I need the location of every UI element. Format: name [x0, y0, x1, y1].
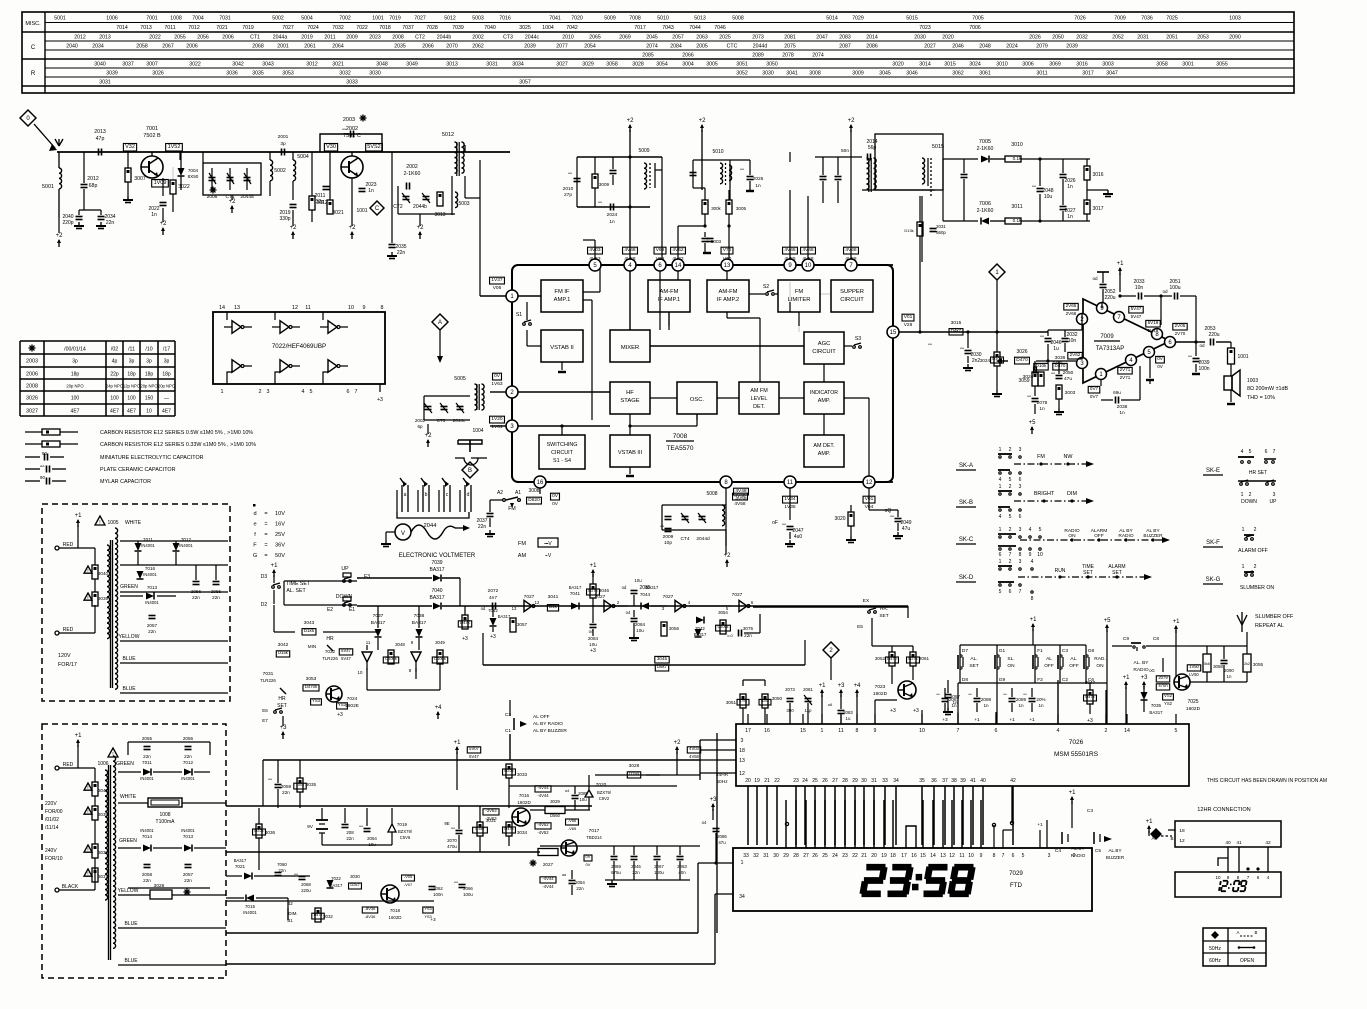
svg-text:68p: 68p — [89, 183, 98, 189]
svg-text:2V62: 2V62 — [1070, 352, 1081, 357]
svg-text:2073: 2073 — [752, 35, 764, 41]
svg-text:3043: 3043 — [262, 62, 274, 68]
svg-text:5: 5 — [1039, 527, 1042, 533]
svg-text:D22k: D22k — [254, 828, 263, 833]
svg-text:1: 1 — [1242, 564, 1245, 570]
svg-text:2V65: 2V65 — [1066, 303, 1077, 308]
svg-text:5015: 5015 — [906, 16, 918, 22]
svg-text:SWITCHING: SWITCHING — [547, 442, 578, 448]
svg-text:27: 27 — [832, 778, 838, 784]
svg-text:o4: o4 — [702, 820, 707, 825]
svg-text:2002: 2002 — [406, 164, 418, 170]
svg-text:SET: SET — [1112, 570, 1122, 576]
svg-text:BA317: BA317 — [646, 585, 659, 590]
svg-text:CT2: CT2 — [415, 35, 425, 41]
svg-text:3014: 3014 — [919, 62, 931, 68]
svg-text:3036: 3036 — [265, 830, 276, 835]
svg-text:6: 6 — [1265, 449, 1268, 455]
svg-text:7022/HEF4069UBP: 7022/HEF4069UBP — [272, 343, 326, 350]
svg-text:7042: 7042 — [566, 25, 578, 31]
svg-text:2086: 2086 — [866, 44, 878, 50]
svg-text:3041: 3041 — [548, 594, 559, 600]
svg-text:120V: 120V — [58, 653, 71, 659]
svg-text:7017: 7017 — [634, 25, 646, 31]
svg-text:SET: SET — [879, 613, 888, 619]
svg-text:BA317: BA317 — [569, 585, 582, 590]
svg-text:3021: 3021 — [332, 62, 344, 68]
svg-text:▵▵: ▵▵ — [936, 692, 940, 696]
svg-text:100u: 100u — [1169, 285, 1180, 291]
svg-text:16: 16 — [537, 480, 544, 486]
svg-text:LEVEL: LEVEL — [751, 396, 768, 402]
svg-text:30: 30 — [861, 778, 867, 784]
svg-text:▵▵: ▵▵ — [1040, 333, 1044, 338]
svg-text:TLR226: TLR226 — [322, 656, 338, 661]
svg-text:1n: 1n — [1018, 703, 1024, 708]
svg-text:YS2: YS2 — [1164, 701, 1173, 706]
svg-text:4V58: 4V58 — [689, 754, 699, 759]
svg-text:2052: 2052 — [1112, 35, 1124, 41]
svg-text:34: 34 — [739, 894, 745, 900]
svg-text:+3: +3 — [1141, 675, 1149, 681]
svg-text:3031: 3031 — [486, 818, 497, 823]
svg-text:BZX79/: BZX79/ — [398, 829, 413, 834]
svg-text:AL.: AL. — [970, 656, 977, 662]
svg-text:▵▵: ▵▵ — [960, 345, 964, 350]
svg-text:BA317: BA317 — [429, 595, 444, 601]
svg-text:D150: D150 — [629, 771, 640, 776]
svg-text:V01: V01 — [904, 314, 913, 320]
svg-text:22n: 22n — [192, 595, 200, 600]
svg-text:4E7: 4E7 — [110, 409, 119, 415]
svg-text:2055: 2055 — [174, 35, 186, 41]
svg-text:YS3: YS3 — [424, 906, 432, 911]
svg-text:NW: NW — [1064, 454, 1074, 460]
svg-text:208: 208 — [346, 830, 354, 835]
svg-text:PLATE CERAMIC CAPACITOR: PLATE CERAMIC CAPACITOR — [100, 467, 176, 473]
svg-text:2: 2 — [1254, 564, 1257, 570]
svg-text:7029: 7029 — [1009, 870, 1023, 877]
svg-text:BA317: BA317 — [429, 567, 444, 573]
svg-text:D10k: D10k — [992, 356, 1001, 361]
svg-text:=: = — [264, 532, 267, 538]
svg-text:4: 4 — [1241, 449, 1244, 455]
svg-text:D15k: D15k — [278, 650, 289, 655]
svg-text:1n: 1n — [1039, 406, 1045, 412]
svg-text:CT4: CT4 — [680, 536, 689, 542]
svg-text:2062: 2062 — [433, 886, 443, 891]
svg-text:2009: 2009 — [346, 35, 358, 41]
svg-text:2002: 2002 — [472, 35, 484, 41]
svg-text:8X50: 8X50 — [188, 174, 199, 179]
svg-text:2046: 2046 — [952, 44, 964, 50]
svg-text:1: 1 — [999, 527, 1002, 533]
svg-text:1u: 1u — [846, 716, 851, 721]
svg-text:/11: /11 — [128, 347, 135, 353]
svg-text:7011: 7011 — [142, 760, 152, 765]
svg-text:MIN: MIN — [308, 644, 316, 649]
svg-text:2083: 2083 — [839, 35, 851, 41]
svg-text:1: 1 — [999, 559, 1002, 565]
svg-text:SUPPER: SUPPER — [840, 289, 864, 295]
svg-text:2026: 2026 — [1029, 35, 1041, 41]
svg-text:10u: 10u — [589, 642, 597, 647]
svg-text:2011: 2011 — [324, 35, 335, 41]
svg-text:0V: 0V — [552, 501, 559, 507]
svg-text:5005: 5005 — [454, 376, 466, 382]
svg-text:+1: +1 — [1030, 617, 1038, 623]
svg-text:2031: 2031 — [1137, 35, 1149, 41]
svg-text:2023: 2023 — [369, 35, 381, 41]
svg-text:8: 8 — [1237, 875, 1240, 880]
svg-text:3036: 3036 — [1055, 355, 1066, 361]
svg-text:5VS2: 5VS2 — [367, 144, 380, 150]
svg-text:e: e — [253, 522, 256, 528]
svg-text:2013: 2013 — [94, 129, 106, 135]
svg-text:7024: 7024 — [347, 696, 358, 702]
svg-text:3017: 3017 — [1082, 71, 1094, 77]
svg-text:2056: 2056 — [197, 35, 209, 41]
svg-text:2072: 2072 — [488, 588, 499, 594]
svg-text:47p: 47p — [96, 136, 105, 142]
svg-text:o.0: o.0 — [727, 633, 733, 638]
svg-text:D100k: D100k — [434, 656, 446, 661]
svg-text:3007: 3007 — [146, 62, 158, 68]
svg-text:2053: 2053 — [1197, 35, 1209, 41]
svg-text:S1 - S4: S1 - S4 — [553, 458, 571, 464]
svg-text:7044: 7044 — [689, 25, 701, 31]
svg-text:oG: oG — [1149, 668, 1155, 673]
svg-text:1V20: 1V20 — [491, 416, 503, 422]
svg-text:CIRCUIT: CIRCUIT — [812, 349, 836, 355]
svg-text:3046: 3046 — [599, 588, 610, 593]
svg-text:2044a: 2044a — [273, 35, 288, 41]
svg-text:C9: C9 — [1123, 636, 1129, 642]
svg-text:330p: 330p — [279, 216, 290, 222]
svg-text:1: 1 — [221, 389, 224, 395]
svg-text:YS3: YS3 — [312, 698, 321, 703]
svg-text:7019: 7019 — [389, 16, 401, 22]
svg-text:A: A — [438, 320, 442, 326]
svg-text:UP: UP — [1270, 499, 1278, 505]
svg-text:7013: 7013 — [140, 25, 152, 31]
svg-text:24: 24 — [832, 853, 838, 859]
svg-text:3010: 3010 — [996, 62, 1008, 68]
svg-text:7040: 7040 — [431, 588, 442, 594]
svg-text:2073: 2073 — [785, 687, 795, 692]
svg-text:3035: 3035 — [252, 71, 264, 77]
svg-text:2069: 2069 — [611, 864, 621, 869]
svg-text:G1: G1 — [999, 648, 1006, 654]
svg-text:V70: V70 — [723, 256, 732, 262]
svg-text:2047: 2047 — [816, 35, 828, 41]
svg-text:19: 19 — [881, 853, 887, 859]
svg-text:+3: +3 — [490, 634, 496, 640]
svg-text:IF AMP.2: IF AMP.2 — [717, 297, 739, 303]
svg-text:E2: E2 — [327, 607, 333, 613]
svg-text:3032: 3032 — [339, 71, 351, 77]
svg-text:2044b: 2044b — [437, 35, 452, 41]
svg-text:1005: 1005 — [107, 520, 118, 526]
svg-text:10u: 10u — [1044, 194, 1053, 200]
svg-text:YELLOW: YELLOW — [119, 634, 140, 640]
svg-text:100k: 100k — [296, 783, 304, 787]
svg-text:3: 3 — [1048, 853, 1051, 859]
svg-text:3055: 3055 — [1216, 62, 1228, 68]
svg-text:7031: 7031 — [263, 671, 274, 677]
svg-text:15: 15 — [920, 853, 926, 859]
svg-text:7015: 7015 — [245, 904, 256, 909]
svg-text:2006: 2006 — [222, 35, 234, 41]
svg-text:3058: 3058 — [1156, 62, 1168, 68]
svg-text:8: 8 — [993, 853, 996, 859]
svg-text:2044b: 2044b — [413, 204, 427, 210]
svg-text:3051: 3051 — [736, 62, 748, 68]
svg-text:2055: 2055 — [142, 736, 153, 741]
svg-text:2077: 2077 — [556, 44, 568, 50]
svg-text:2050: 2050 — [1052, 35, 1064, 41]
svg-text:4: 4 — [1031, 559, 1034, 565]
svg-text:0V: 0V — [494, 373, 501, 379]
svg-text:+3: +3 — [377, 397, 383, 403]
svg-text:5012: 5012 — [442, 132, 454, 138]
svg-text:3003: 3003 — [1102, 62, 1114, 68]
svg-text:▵▵: ▵▵ — [782, 521, 786, 526]
svg-text:2039: 2039 — [1066, 44, 1078, 50]
svg-text:2070: 2070 — [447, 838, 457, 843]
svg-text:18: 18 — [1179, 828, 1185, 834]
svg-text:22n: 22n — [397, 250, 406, 256]
svg-text:E7: E7 — [262, 718, 268, 723]
svg-text:RED: RED — [63, 627, 74, 633]
svg-text:LV50: LV50 — [1189, 672, 1199, 677]
svg-text:▵▵: ▵▵ — [451, 825, 455, 830]
svg-text:YELLOW: YELLOW — [118, 888, 139, 894]
svg-text:7: 7 — [1019, 589, 1022, 595]
svg-text:TLR226: TLR226 — [260, 678, 276, 683]
svg-text:/01/02: /01/02 — [45, 817, 59, 823]
svg-text:3045: 3045 — [657, 656, 668, 661]
svg-text:DOWN: DOWN — [1241, 499, 1257, 505]
svg-text:2069: 2069 — [619, 35, 631, 41]
svg-text:7004: 7004 — [192, 16, 204, 22]
svg-text:3p: 3p — [146, 359, 152, 365]
svg-text:8: 8 — [856, 728, 859, 734]
svg-text:!: ! — [87, 569, 88, 575]
svg-text:7043: 7043 — [662, 25, 674, 31]
svg-text:3009: 3009 — [599, 182, 610, 187]
svg-text:E3: E3 — [364, 574, 370, 580]
svg-text:FTD: FTD — [1010, 882, 1023, 889]
svg-text:MYLAR CAPACITOR: MYLAR CAPACITOR — [100, 479, 151, 485]
svg-text:2010: 2010 — [563, 186, 574, 192]
svg-text:3020: 3020 — [834, 516, 845, 522]
svg-text:C2: C2 — [1062, 677, 1068, 683]
svg-text:7005: 7005 — [979, 139, 991, 145]
svg-text:7: 7 — [1009, 552, 1012, 558]
svg-text:3013: 3013 — [446, 62, 458, 68]
svg-text:42: 42 — [1265, 840, 1271, 846]
svg-text:33p: 33p — [316, 199, 325, 205]
svg-text:D10k: D10k — [1036, 363, 1047, 368]
svg-text:3040: 3040 — [98, 788, 108, 793]
svg-text:+3: +3 — [710, 797, 718, 803]
svg-text:AM: AM — [518, 553, 527, 559]
svg-text:12: 12 — [535, 600, 540, 605]
svg-text:D4k7: D4k7 — [951, 328, 962, 333]
svg-text:10: 10 — [1215, 875, 1221, 880]
svg-text:2079: 2079 — [1158, 675, 1168, 680]
svg-text:3049: 3049 — [435, 640, 445, 645]
svg-text:5V47: 5V47 — [341, 656, 351, 661]
svg-text:22n: 22n — [282, 790, 290, 795]
svg-text:8Ω 200mW ±1dB: 8Ω 200mW ±1dB — [1247, 386, 1289, 392]
svg-text:2075: 2075 — [784, 44, 796, 50]
svg-text:GREEN: GREEN — [116, 761, 134, 767]
svg-text:2078: 2078 — [1037, 400, 1048, 406]
svg-text:4: 4 — [999, 514, 1002, 520]
svg-text:-8V36: -8V36 — [365, 914, 376, 919]
svg-text:35: 35 — [919, 778, 925, 784]
svg-text:5010: 5010 — [657, 16, 669, 22]
svg-text:2: 2 — [259, 389, 262, 395]
svg-text:S3: S3 — [855, 336, 861, 342]
svg-text:2003: 2003 — [26, 359, 38, 365]
svg-text:7009: 7009 — [1100, 334, 1114, 340]
svg-text:22n: 22n — [143, 878, 151, 883]
svg-text:2006: 2006 — [186, 44, 198, 50]
svg-text:1n: 1n — [151, 212, 157, 218]
svg-text:AL. BY: AL. BY — [1134, 660, 1150, 666]
svg-text:7029: 7029 — [852, 16, 864, 22]
svg-text:5003: 5003 — [458, 201, 469, 207]
svg-text:V32: V32 — [125, 144, 135, 150]
svg-text:15: 15 — [800, 728, 806, 734]
svg-text:2087: 2087 — [949, 697, 960, 702]
svg-text:0V7: 0V7 — [1090, 394, 1099, 399]
svg-text:5V19: 5V19 — [1148, 320, 1159, 325]
svg-text:AL: AL — [1046, 656, 1052, 662]
svg-text:5V07: 5V07 — [469, 746, 479, 751]
svg-text:1n: 1n — [609, 219, 615, 225]
svg-text:2088: 2088 — [981, 697, 992, 702]
svg-text:22n: 22n — [278, 868, 286, 873]
svg-text:5009: 5009 — [604, 16, 616, 22]
svg-text:CT3: CT3 — [503, 35, 513, 41]
svg-text:3055: 3055 — [1253, 662, 1264, 667]
svg-text:7006: 7006 — [979, 201, 991, 207]
svg-text:3031: 3031 — [486, 62, 498, 68]
svg-text:S2: S2 — [763, 284, 769, 290]
svg-text:100u: 100u — [463, 892, 473, 897]
svg-text:10u: 10u — [636, 628, 644, 633]
svg-text:10V: 10V — [275, 511, 285, 517]
svg-text:15: 15 — [890, 330, 897, 336]
svg-text:od: od — [481, 606, 486, 611]
svg-text:G9: G9 — [999, 677, 1006, 683]
svg-text:50Hz: 50Hz — [1209, 946, 1221, 952]
svg-text:VSTAB II: VSTAB II — [550, 345, 574, 351]
svg-text:220V: 220V — [45, 801, 57, 807]
svg-text:IF AMP.1: IF AMP.1 — [658, 297, 680, 303]
svg-text:HR SET: HR SET — [1249, 470, 1267, 476]
svg-text:2065: 2065 — [589, 35, 601, 41]
svg-text:1003: 1003 — [1229, 16, 1241, 22]
svg-text:50n: 50n — [841, 148, 849, 154]
svg-text:2V71: 2V71 — [1120, 367, 1131, 372]
svg-text:3050: 3050 — [772, 696, 783, 701]
svg-text:13: 13 — [724, 263, 731, 269]
svg-text:4V58: 4V58 — [735, 496, 747, 502]
svg-text:3036: 3036 — [226, 71, 238, 77]
svg-text:7014: 7014 — [142, 834, 153, 839]
svg-text:▵▵: ▵▵ — [40, 463, 44, 468]
svg-text:2005: 2005 — [696, 44, 708, 50]
svg-text:C3: C3 — [1087, 808, 1093, 814]
svg-text:R: R — [31, 71, 36, 77]
svg-text:7041: 7041 — [570, 591, 581, 596]
svg-text:100: 100 — [127, 396, 136, 402]
svg-text:B1: B1 — [287, 918, 293, 923]
svg-text:F1: F1 — [1037, 648, 1043, 654]
svg-text:12p NPO: 12p NPO — [123, 384, 141, 389]
svg-text:WHITE: WHITE — [120, 794, 137, 800]
svg-text:7502 B: 7502 B — [143, 133, 161, 139]
svg-text:2014: 2014 — [866, 35, 878, 41]
svg-text:OFF: OFF — [1044, 663, 1054, 669]
svg-text:C3: C3 — [1062, 648, 1068, 654]
svg-text:11: 11 — [305, 305, 311, 311]
svg-text:7001: 7001 — [146, 16, 158, 22]
svg-text:3057: 3057 — [519, 80, 531, 86]
svg-text:3008: 3008 — [809, 71, 821, 77]
svg-text:11: 11 — [959, 853, 964, 859]
svg-text:3030: 3030 — [350, 874, 360, 879]
svg-text:2025: 2025 — [753, 176, 764, 182]
svg-text:AMP.: AMP. — [818, 398, 830, 404]
svg-text:4n7: 4n7 — [489, 595, 497, 601]
svg-text:STAGE: STAGE — [620, 398, 639, 404]
svg-text:7023: 7023 — [919, 25, 931, 31]
svg-text:D7: D7 — [962, 648, 968, 654]
svg-text:3039: 3039 — [106, 71, 118, 77]
svg-text:MINIATURE ELECTROLYTIC CAPACIT: MINIATURE ELECTROLYTIC CAPACITOR — [100, 455, 204, 461]
svg-text:7: 7 — [1247, 875, 1250, 880]
svg-text:AL.BY: AL.BY — [1108, 848, 1121, 853]
svg-text:C9V2: C9V2 — [599, 796, 610, 801]
svg-text:0V: 0V — [586, 854, 591, 859]
svg-text:1: 1 — [821, 728, 824, 734]
svg-text:13: 13 — [940, 853, 946, 859]
svg-text:FM: FM — [1037, 454, 1045, 460]
svg-text:5010: 5010 — [712, 149, 723, 155]
svg-text:C1: C1 — [505, 728, 511, 734]
svg-text:+1: +1 — [75, 513, 83, 519]
svg-text:3011: 3011 — [1011, 204, 1022, 210]
svg-text:4E7: 4E7 — [71, 409, 80, 415]
svg-text:▵▵: ▵▵ — [890, 513, 894, 518]
svg-text:/00/01/14: /00/01/14 — [64, 347, 86, 353]
svg-text:SK-D: SK-D — [959, 575, 974, 581]
svg-text:+3: +3 — [462, 636, 468, 642]
svg-text:3039: 3039 — [98, 596, 109, 601]
svg-text:25: 25 — [822, 853, 828, 859]
svg-text:3047: 3047 — [1106, 71, 1118, 77]
svg-text:D47k: D47k — [314, 913, 323, 917]
svg-text:7019: 7019 — [397, 822, 408, 827]
svg-text:2067: 2067 — [654, 864, 664, 869]
svg-text:HF: HF — [626, 390, 634, 396]
